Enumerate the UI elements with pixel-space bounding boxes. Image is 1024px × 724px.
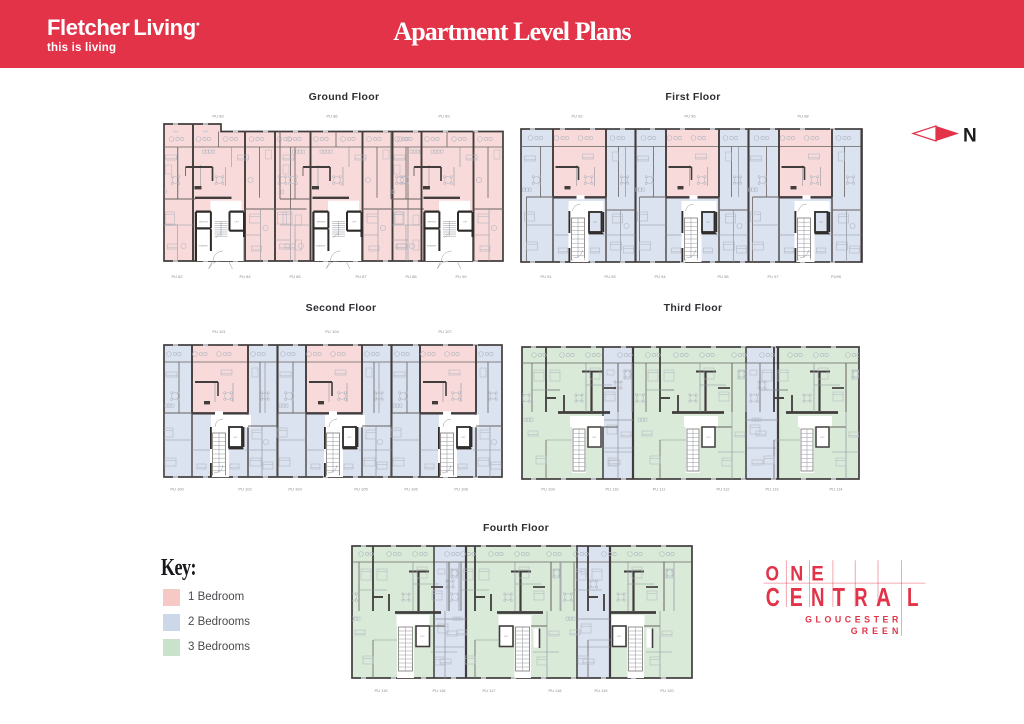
svg-text:PU 120: PU 120 (660, 688, 674, 693)
svg-text:PU 93: PU 93 (604, 274, 616, 279)
svg-text:PU 113: PU 113 (765, 487, 779, 492)
svg-text:LIFT: LIFT (463, 222, 468, 224)
svg-text:PU 110: PU 110 (605, 487, 619, 492)
svg-text:PU 84: PU 84 (239, 274, 251, 279)
svg-text:PU 112: PU 112 (716, 487, 730, 492)
svg-text:PU 118: PU 118 (548, 688, 562, 693)
svg-text:PU 111: PU 111 (653, 487, 667, 492)
svg-text:N: N (811, 582, 825, 612)
svg-text:PU 91: PU 91 (540, 274, 552, 279)
svg-text:PU 97: PU 97 (767, 274, 779, 279)
svg-text:PU 106: PU 106 (404, 487, 418, 492)
svg-text:PU 104: PU 104 (325, 329, 339, 334)
svg-text:PU 98: PU 98 (797, 114, 809, 119)
svg-text:PU 89: PU 89 (438, 114, 450, 119)
svg-text:PU 115: PU 115 (374, 688, 388, 693)
svg-text:PU 109: PU 109 (541, 487, 555, 492)
svg-text:RUBBISH: RUBBISH (427, 246, 437, 248)
svg-text:PU 90: PU 90 (455, 274, 467, 279)
svg-text:PU 96: PU 96 (717, 274, 729, 279)
svg-text:PU 94: PU 94 (654, 274, 666, 279)
svg-text:RUBBISH: RUBBISH (198, 246, 208, 248)
svg-text:N: N (963, 126, 977, 147)
svg-text:PU 107: PU 107 (438, 329, 452, 334)
svg-text:PU 103: PU 103 (288, 487, 302, 492)
svg-text:PU 101: PU 101 (212, 329, 226, 334)
svg-text:PU 92: PU 92 (571, 114, 583, 119)
svg-text:PU 119: PU 119 (594, 688, 608, 693)
svg-text:C: C (766, 582, 780, 612)
svg-text:GLOUCESTER: GLOUCESTER (805, 615, 899, 625)
svg-text:GREEN: GREEN (851, 626, 899, 636)
svg-text:PU 117: PU 117 (482, 688, 496, 693)
svg-text:PU 83: PU 83 (212, 114, 224, 119)
svg-text:PU 116: PU 116 (432, 688, 446, 693)
svg-text:E: E (790, 582, 803, 612)
svg-text:LIFT: LIFT (235, 222, 240, 224)
svg-text:PU 105: PU 105 (354, 487, 368, 492)
svg-text:PU 108: PU 108 (454, 487, 468, 492)
svg-text:LIFT: LIFT (352, 222, 357, 224)
svg-text:PU 86: PU 86 (326, 114, 338, 119)
svg-text:PU 87: PU 87 (355, 274, 367, 279)
svg-text:SERVICE: SERVICE (316, 222, 326, 224)
svg-text:R: R (855, 582, 868, 612)
svg-text:PU 102: PU 102 (238, 487, 252, 492)
svg-text:PU99: PU99 (831, 274, 842, 279)
svg-text:PU 85: PU 85 (289, 274, 301, 279)
svg-text:PU 95: PU 95 (684, 114, 696, 119)
svg-text:T: T (833, 582, 846, 612)
svg-text:SERVICE: SERVICE (199, 222, 209, 224)
svg-text:PU 82: PU 82 (171, 274, 183, 279)
svg-text:PU 114: PU 114 (829, 487, 843, 492)
svg-text:L: L (907, 582, 919, 612)
svg-text:PU 88: PU 88 (405, 274, 417, 279)
svg-text:SERVICE: SERVICE (427, 222, 437, 224)
svg-text:RUBBISH: RUBBISH (316, 246, 326, 248)
svg-text:PU 100: PU 100 (170, 487, 184, 492)
